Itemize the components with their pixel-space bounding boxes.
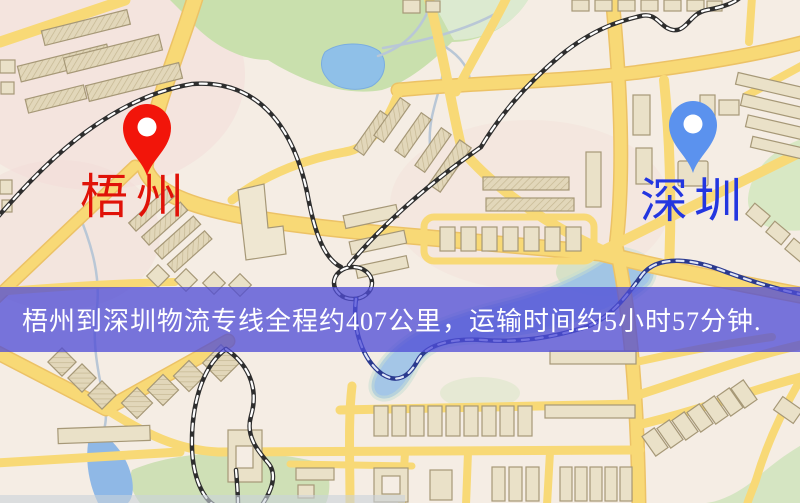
route-info-banner: 梧州到深圳物流专线全程约407公里，运输时间约5小时57分钟.: [0, 287, 800, 352]
destination-pin-marker[interactable]: [665, 99, 721, 175]
origin-pin-marker[interactable]: [119, 102, 175, 178]
map-stage: 梧州 深圳 梧州到深圳物流专线全程约407公里，运输时间约5小时57分钟.: [0, 0, 800, 503]
route-info-text: 梧州到深圳物流专线全程约407公里，运输时间约5小时57分钟.: [22, 301, 762, 338]
shore-strip: [0, 495, 405, 503]
pin-hole: [684, 115, 703, 134]
map-canvas: [0, 0, 800, 503]
origin-city-label: 梧州: [80, 174, 192, 222]
lake: [321, 44, 384, 89]
location-pin-icon: [665, 99, 721, 175]
pin-hole: [138, 118, 157, 137]
destination-city-label: 深圳: [640, 178, 748, 226]
location-pin-icon: [119, 102, 175, 178]
